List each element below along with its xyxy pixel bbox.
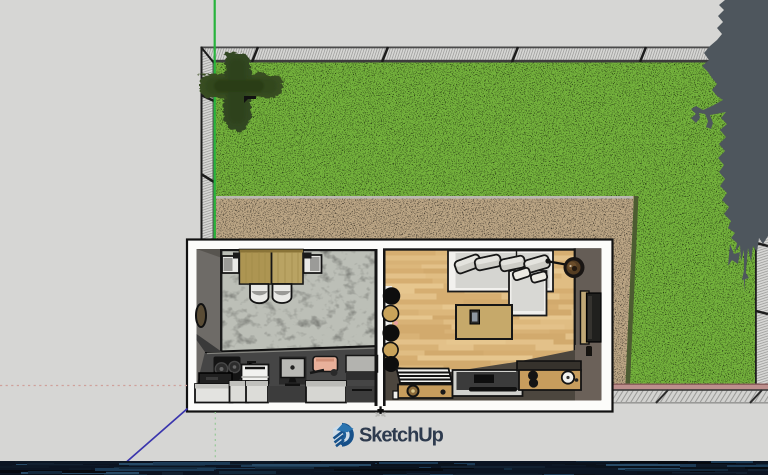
svg-text:SketchUp: SketchUp xyxy=(359,425,444,447)
